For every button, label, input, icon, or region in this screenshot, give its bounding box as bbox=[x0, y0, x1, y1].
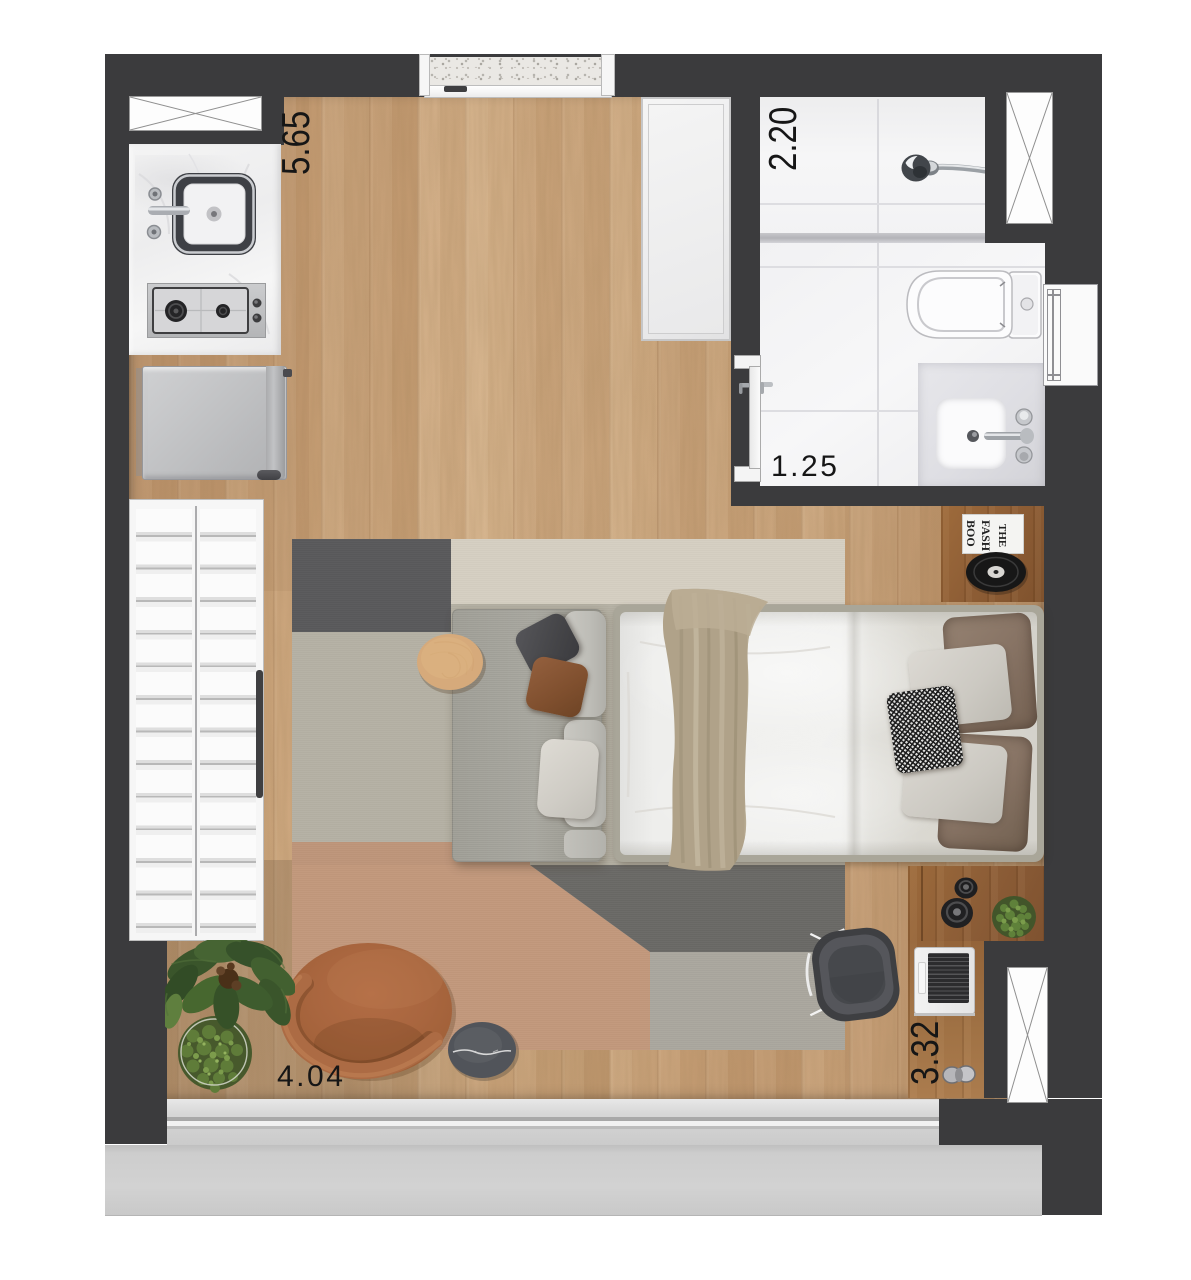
svg-text:BOO: BOO bbox=[964, 520, 978, 547]
svg-text:THE: THE bbox=[996, 524, 1008, 547]
svg-text:FASH: FASH bbox=[979, 520, 993, 552]
